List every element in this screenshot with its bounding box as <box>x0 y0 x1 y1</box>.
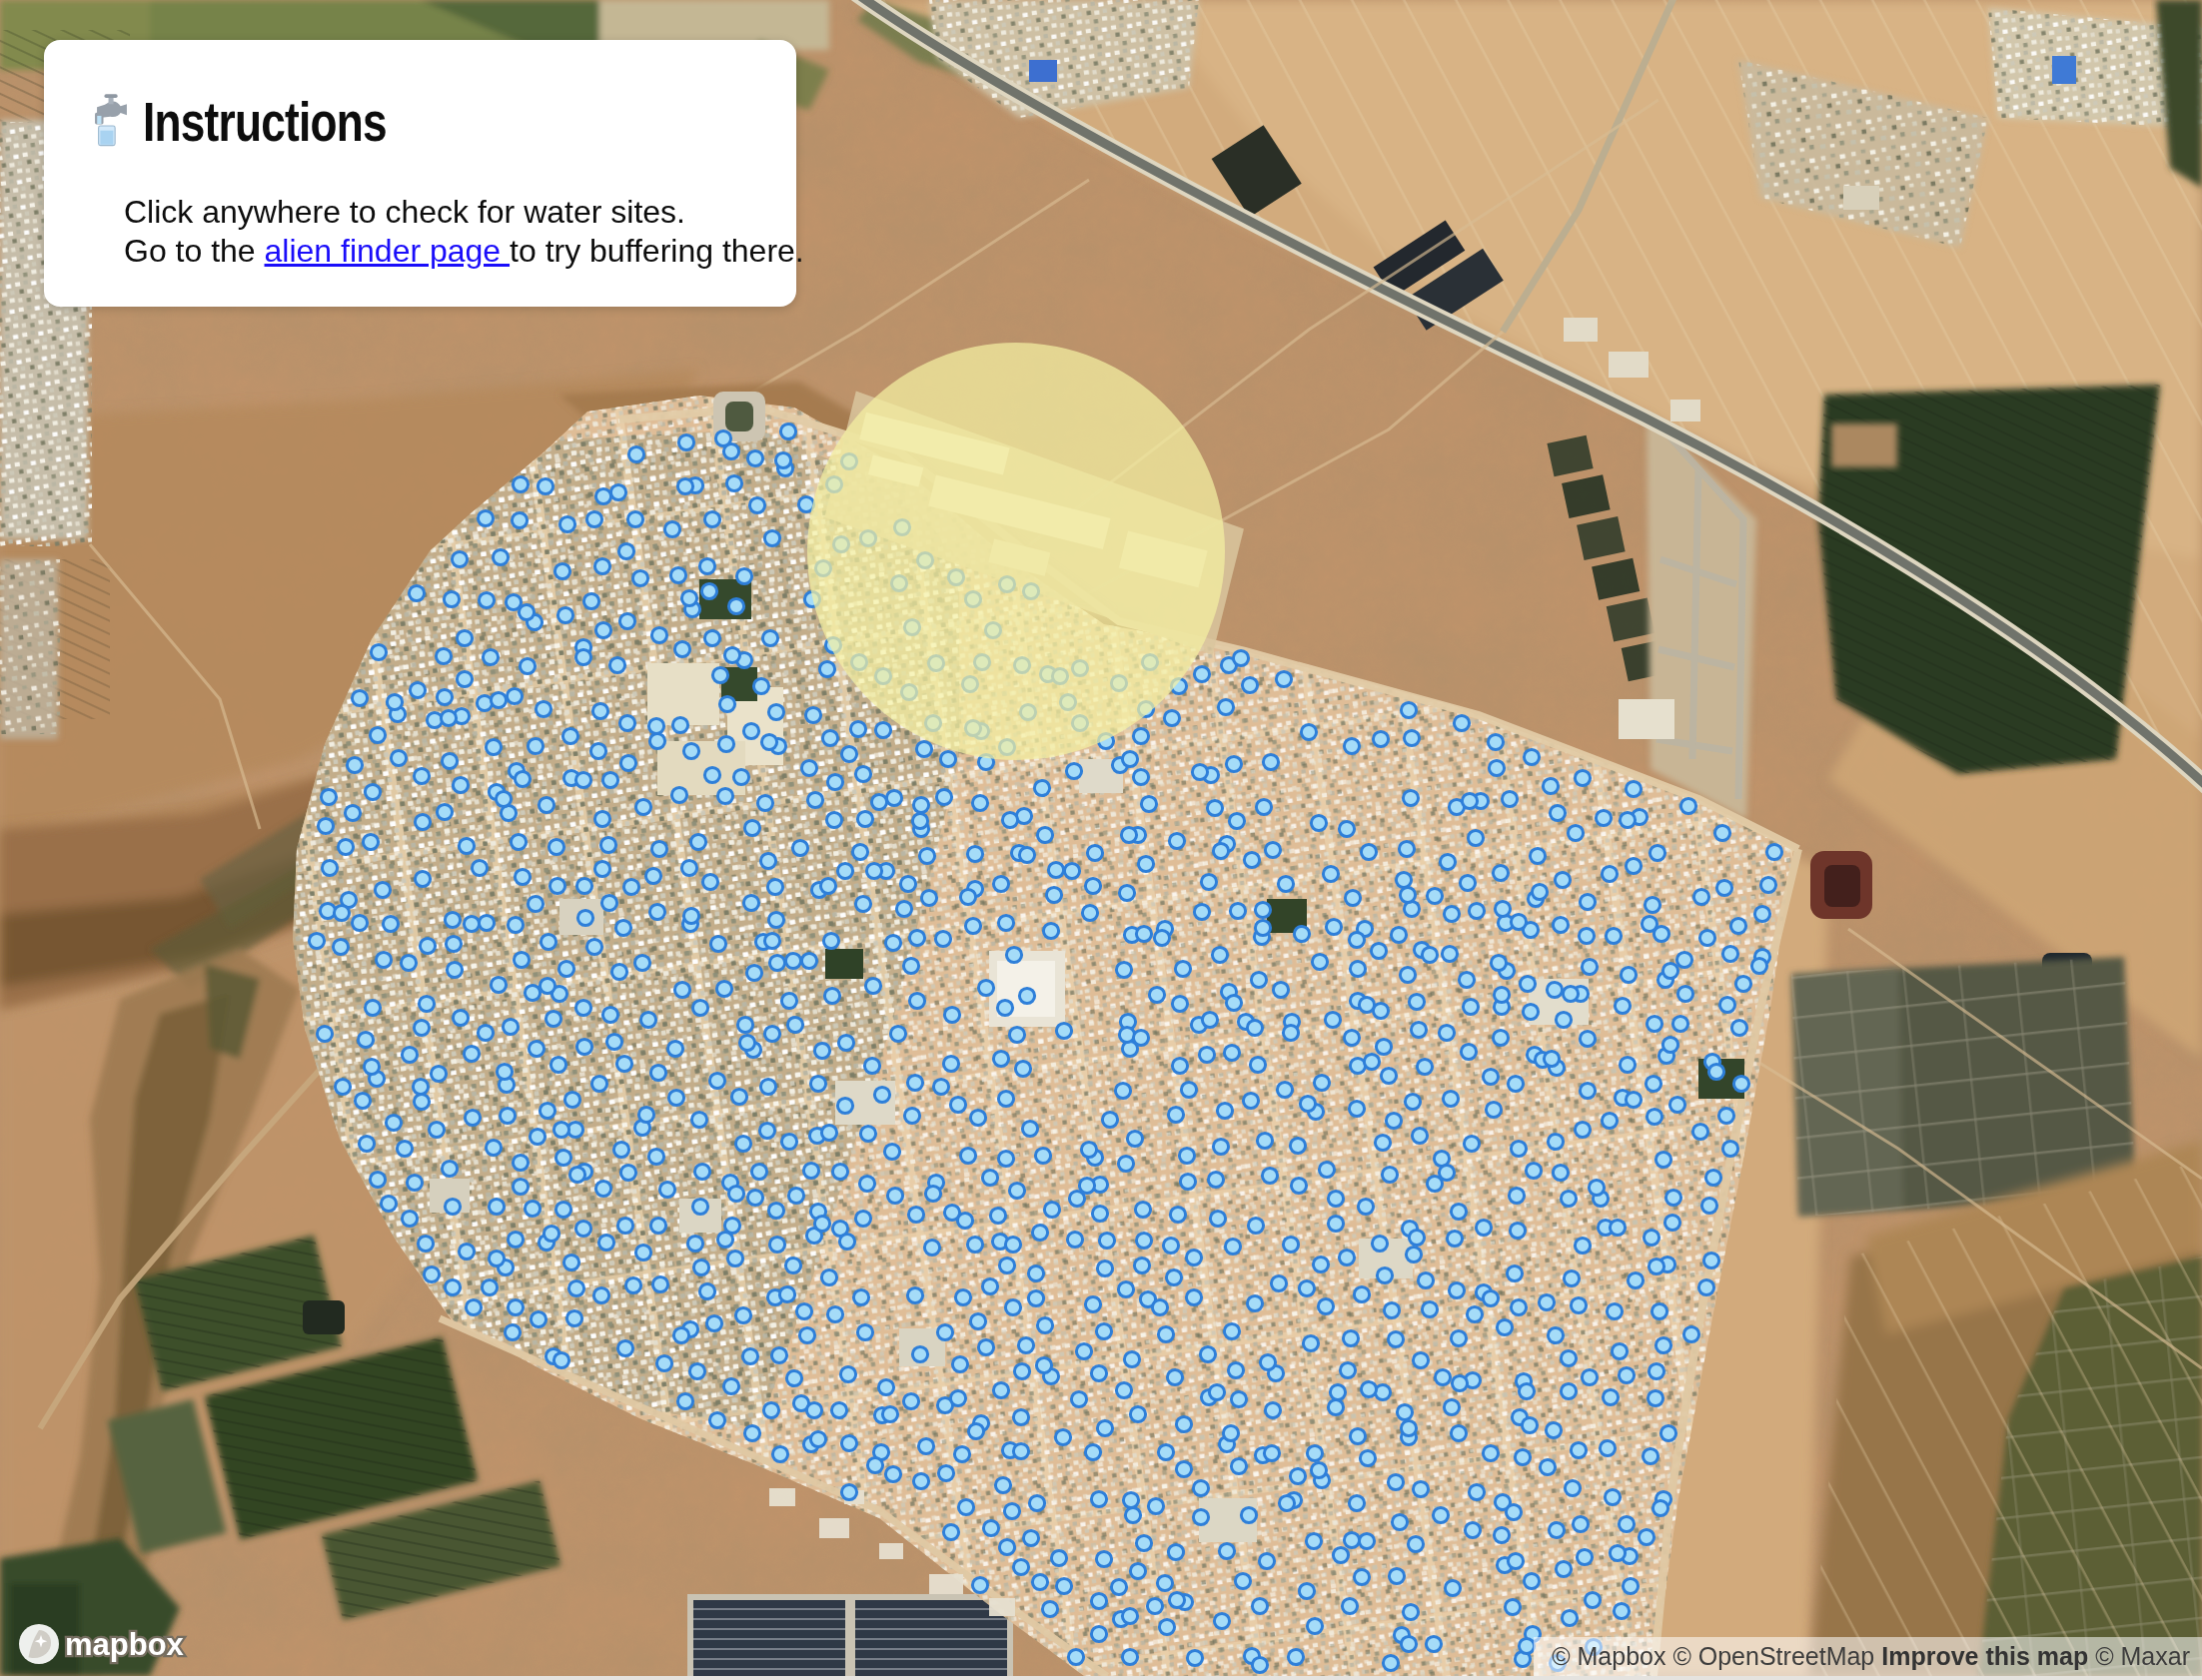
svg-text:mapbox: mapbox <box>65 1627 185 1662</box>
